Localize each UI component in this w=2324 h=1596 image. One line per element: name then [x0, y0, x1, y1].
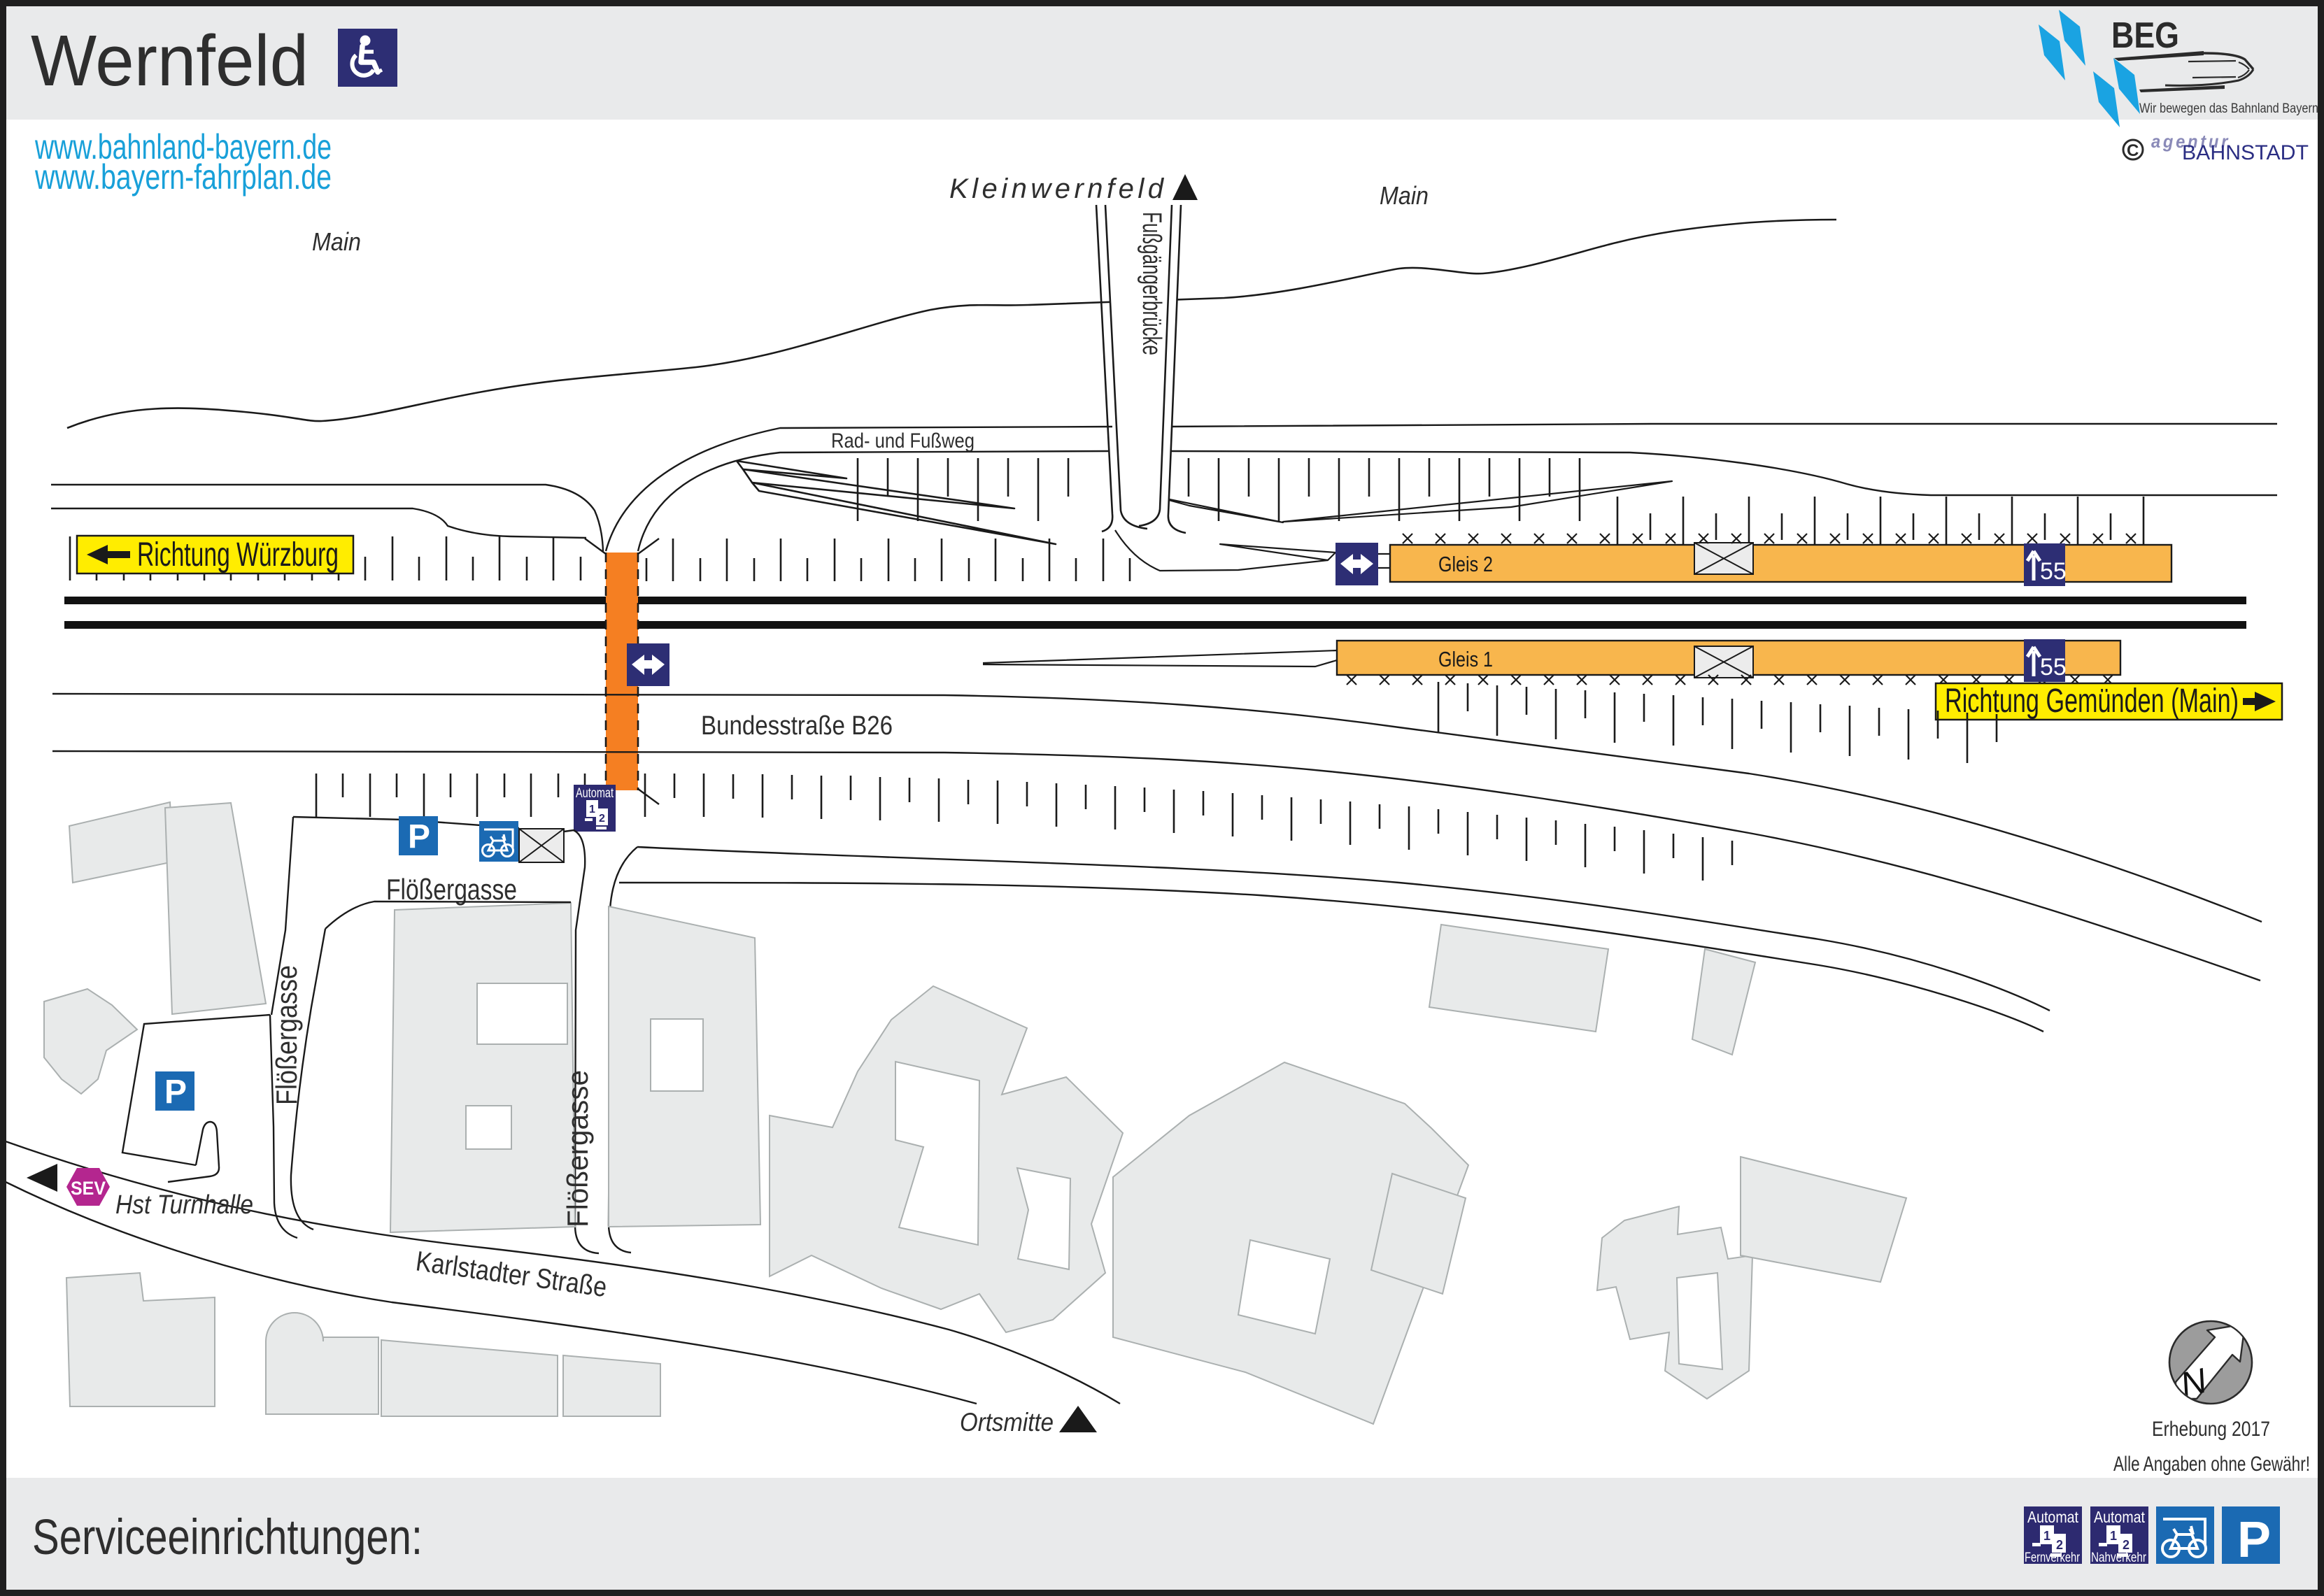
svg-text:Main: Main — [312, 227, 361, 256]
svg-text:www.bayern-fahrplan.de: www.bayern-fahrplan.de — [34, 157, 332, 197]
svg-text:P: P — [408, 818, 430, 855]
svg-text:Automat: Automat — [2094, 1508, 2146, 1526]
svg-text:Gleis 2: Gleis 2 — [1438, 552, 1493, 576]
svg-text:Richtung Würzburg: Richtung Würzburg — [137, 536, 339, 573]
svg-text:Fernverkehr: Fernverkehr — [2025, 1551, 2081, 1565]
svg-text:P: P — [2237, 1512, 2271, 1568]
svg-text:Alle Angaben ohne Gewähr!: Alle Angaben ohne Gewähr! — [2113, 1453, 2310, 1476]
svg-text:Wernfeld: Wernfeld — [31, 20, 309, 101]
svg-text:1: 1 — [589, 804, 595, 815]
svg-text:Gleis 1: Gleis 1 — [1438, 647, 1493, 671]
svg-text:Ortsmitte: Ortsmitte — [960, 1408, 1054, 1437]
svg-text:Bundesstraße B26: Bundesstraße B26 — [701, 711, 893, 741]
svg-text:Main: Main — [1380, 181, 1429, 210]
svg-text:BEG: BEG — [2111, 15, 2179, 56]
svg-text:Nahverkehr: Nahverkehr — [2091, 1551, 2147, 1565]
svg-text:P: P — [164, 1074, 187, 1111]
svg-text:C: C — [2127, 141, 2139, 160]
svg-text:SEV: SEV — [71, 1178, 106, 1199]
svg-text:BAHNSTADT: BAHNSTADT — [2182, 141, 2309, 164]
svg-text:Kleinwernfeld: Kleinwernfeld — [949, 173, 1165, 204]
svg-text:Wir bewegen das Bahnland Bayer: Wir bewegen das Bahnland Bayern — [2139, 101, 2318, 116]
svg-text:Automat: Automat — [576, 786, 614, 801]
svg-text:2: 2 — [599, 813, 605, 825]
svg-text:Erhebung 2017: Erhebung 2017 — [2152, 1418, 2270, 1441]
svg-text:Richtung Gemünden (Main): Richtung Gemünden (Main) — [1945, 683, 2239, 720]
svg-text:Hst Turnhalle: Hst Turnhalle — [115, 1190, 253, 1220]
svg-text:Rad- und Fußweg: Rad- und Fußweg — [831, 429, 975, 453]
svg-text:Fußgängerbrücke: Fußgängerbrücke — [1137, 212, 1166, 355]
svg-text:1: 1 — [2043, 1529, 2050, 1543]
svg-text:2: 2 — [2056, 1538, 2063, 1552]
svg-text:Serviceeinrichtungen:: Serviceeinrichtungen: — [32, 1510, 423, 1565]
svg-text:Flößergasse: Flößergasse — [561, 1070, 594, 1227]
svg-text:2: 2 — [2123, 1538, 2130, 1552]
svg-text:Flößergasse: Flößergasse — [386, 873, 517, 906]
svg-text:55: 55 — [2040, 558, 2067, 585]
svg-text:55: 55 — [2040, 654, 2067, 681]
svg-text:Flößergasse: Flößergasse — [270, 965, 303, 1105]
svg-text:1: 1 — [2110, 1529, 2117, 1543]
svg-text:Automat: Automat — [2027, 1508, 2079, 1526]
